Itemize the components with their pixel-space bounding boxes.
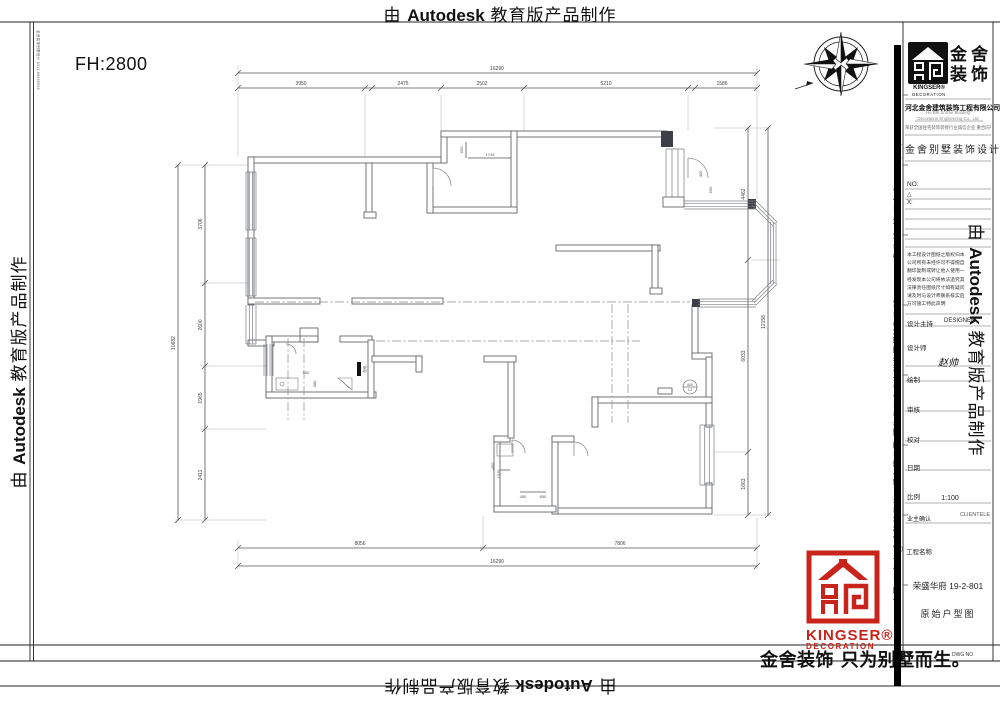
dim-top-total: 16290 (490, 66, 504, 72)
banner-pre: 由 (10, 470, 29, 488)
project-name: 荣盛华府 19-2-801 (905, 580, 991, 592)
walls (248, 131, 712, 514)
dim-right-3: 1663 (741, 478, 747, 489)
field-design-director: 设计主持 (907, 318, 933, 328)
field-designer: 设计师 (907, 342, 927, 352)
company-honor: 荣获全国住宅装饰装修行业诚信企业 重合同守信用单位 (905, 125, 991, 131)
brand-cn-line2: 装饰 (950, 65, 992, 85)
dim-right-total: 12158 (761, 315, 767, 329)
field-designer-value: 赵帅 (928, 354, 968, 369)
company-name-en-2: Decoration Engineering Co., Ltd (905, 116, 991, 121)
dim-top-2: 2475 (397, 81, 408, 87)
dim-inner-5: 550 (303, 370, 310, 375)
dim-top-3: 2502 (476, 81, 487, 87)
banner-pre: 由 (384, 6, 402, 25)
dim-left-4: 2411 (198, 469, 204, 480)
company-name-en-1: He Bei JinShe Building (905, 110, 991, 115)
field-review: 审核 (907, 404, 920, 414)
field-no-label: NO. (907, 181, 919, 188)
drawing-name: 原始户型图 (905, 607, 991, 620)
dim-bottom-total: 16290 (490, 559, 504, 565)
autodesk-banner-left: 由 Autodesk 教育版产品制作 (5, 256, 30, 489)
kingser-red-logo-mark (806, 550, 880, 624)
brand-cn-line1: 金舍 (950, 45, 992, 65)
fixtures (276, 378, 697, 456)
kingser-black-logo (908, 42, 948, 84)
dim-inner-1: 650 (459, 146, 464, 153)
kingser-red-logo: KINGSER® DECORATION (806, 550, 898, 651)
dim-inner-6: 980 (312, 380, 317, 387)
dim-inner-8: 450 (520, 494, 527, 499)
hydrant-label-2: 4-2 (688, 388, 693, 392)
banner-brand: Autodesk (407, 6, 484, 25)
dimension-lines (175, 70, 771, 569)
dim-inner-10: 450 (490, 462, 495, 469)
titleblock-fold-marks (903, 95, 908, 585)
dim-left-2: 2600 (198, 319, 204, 330)
dim-top-1: 3950 (295, 81, 306, 87)
field-owner-value: CLIENTELE (950, 512, 990, 518)
dimension-texts: 16290 3950 2475 2502 5210 1586 8056 7806… (171, 66, 767, 565)
banner-post: 教育版产品制作 (10, 256, 29, 382)
dim-bottom-1: 8056 (354, 541, 365, 547)
brand-subname-en: DECORATION (908, 92, 950, 97)
brand-name-cn: 金舍 装饰 (950, 45, 992, 85)
windows (246, 149, 777, 485)
banner-brand: Autodesk (515, 676, 592, 695)
field-date: 日期 (907, 462, 920, 472)
centerlines (255, 302, 690, 423)
electrical-box (357, 362, 361, 376)
field-x-label: X: (907, 200, 913, 206)
dim-left-1: 3706 (198, 218, 204, 229)
hydrant-symbol (683, 380, 697, 394)
banner-pre: 由 (598, 676, 616, 695)
dimension-extension-lines (175, 66, 780, 569)
dim-right-1: 4462 (741, 188, 747, 199)
field-delta: △ (907, 191, 912, 198)
inner-dimension-texts: 650 1745 450 650 550 980 1025 450 650 45… (303, 146, 713, 499)
drawing-sheet: KINGSER® DECORATION (0, 0, 1000, 707)
dim-bottom-2: 7806 (614, 541, 625, 547)
hydrant-label-1: A05 (687, 383, 693, 387)
banner-post: 教育版产品制作 (490, 6, 616, 25)
banner-pre: 由 (966, 224, 985, 242)
brand-name-en: KINGSER® (908, 85, 950, 91)
dim-inner-9: 650 (540, 494, 547, 499)
field-owner: 业主确认 (907, 514, 931, 523)
field-project-label: 工程名称 (906, 546, 932, 556)
dim-inner-7: 1025 (496, 469, 501, 479)
field-scale: 比例 (907, 491, 920, 501)
dim-inner-4: 650 (708, 186, 713, 193)
margin-micro-note: 金舍装饰别墅设计 0311-88995555 (35, 30, 40, 90)
structural-columns (661, 131, 756, 307)
dim-inner-2: 1745 (486, 152, 496, 157)
dim-left-total: 10682 (171, 336, 177, 350)
dim-right-2: 6033 (741, 350, 747, 361)
brand-slogan: 金舍装饰 只为别墅而生。 (760, 646, 970, 672)
autodesk-banner-top: 由 Autodesk 教育版产品制作 (384, 1, 617, 26)
banner-post: 教育版产品制作 (966, 330, 985, 456)
banner-post: 教育版产品制作 (384, 676, 510, 695)
field-scale-value: 1:100 (930, 495, 970, 502)
compass-rose-icon (795, 32, 878, 96)
titleblock-tagline: 金舍别墅装饰设计 (905, 141, 991, 156)
floor-height-label: FH:2800 (75, 54, 148, 75)
dim-top-5: 1586 (716, 81, 727, 87)
banner-brand: Autodesk (966, 247, 985, 324)
electrical-box-label: 配电 (362, 365, 367, 373)
door-swings (286, 158, 708, 456)
red-logo-name: KINGSER® (806, 629, 898, 642)
titleblock-black-bar (894, 45, 901, 686)
dim-top-4: 5210 (600, 81, 611, 87)
field-proof: 校对 (907, 434, 920, 444)
banner-brand: Autodesk (10, 387, 29, 464)
dim-left-3: 1965 (198, 392, 204, 403)
field-draw: 绘制 (907, 374, 920, 384)
autodesk-banner-right: 由 Autodesk 教育版产品制作 (965, 224, 990, 457)
autodesk-banner-bottom: 由 Autodesk 教育版产品制作 (384, 675, 617, 700)
dim-inner-3: 450 (698, 170, 703, 177)
